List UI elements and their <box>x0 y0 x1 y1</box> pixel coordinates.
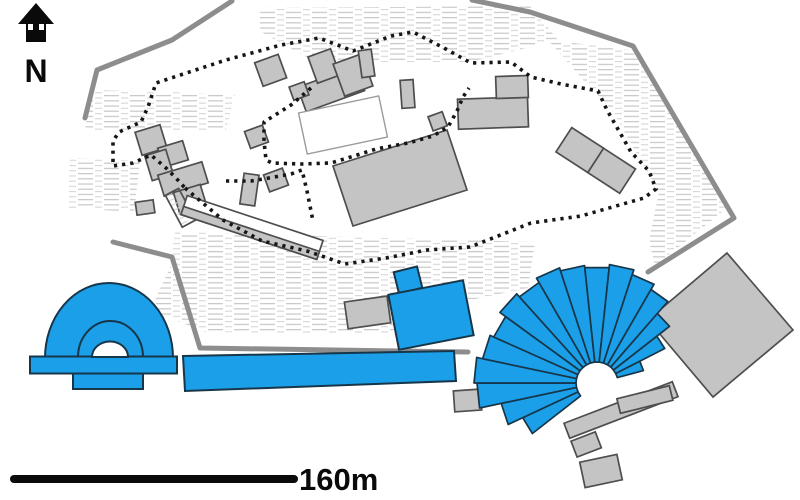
building-footprint <box>344 296 390 329</box>
scale-bar-label: 160m <box>299 462 378 497</box>
north-label: N <box>24 53 47 89</box>
scale-bar: 160m <box>14 462 378 497</box>
north-arrow-shape <box>18 3 54 42</box>
building-footprint <box>400 80 415 109</box>
odeon-stage-bar <box>30 357 177 374</box>
building-footprint <box>457 97 528 129</box>
hatch-area-west-lower <box>68 158 140 212</box>
building-two-part <box>556 128 636 194</box>
building-footprint <box>240 173 259 206</box>
site-plan-map: N 160m <box>0 0 800 500</box>
site-plan-page: N 160m <box>0 0 800 500</box>
north-arrow-notch <box>28 24 33 30</box>
building-footprint <box>496 75 529 98</box>
hatch-area-south <box>150 232 535 334</box>
square-hall-building <box>648 253 793 397</box>
building-footprint <box>135 200 155 215</box>
north-arrow-icon <box>18 3 54 42</box>
building-footprint <box>255 54 287 86</box>
stoa-bar <box>183 351 456 391</box>
building-footprint <box>244 125 268 148</box>
temple-building <box>358 49 375 78</box>
building-footprint <box>580 454 623 487</box>
odeon-semicircle <box>30 283 177 389</box>
north-arrow-notch <box>39 24 44 30</box>
odeon-lower-hall <box>73 374 143 390</box>
